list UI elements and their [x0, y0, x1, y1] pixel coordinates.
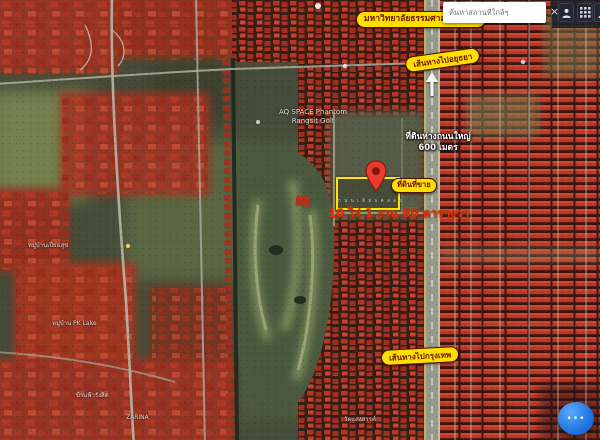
- apps-grid-button[interactable]: [577, 3, 593, 22]
- land-area-text: 10 ไร่ 1 งาน 80 ตารางวา: [328, 205, 452, 223]
- village-label: บ้านฟ้ารังสิต: [76, 390, 109, 400]
- person-icon: [561, 7, 572, 19]
- profile-button[interactable]: [558, 3, 574, 22]
- village-label: หมู่บ้านเปี่ยมสุข: [28, 240, 68, 250]
- chat-button[interactable]: •••: [558, 402, 594, 435]
- distance-line1: ที่ดินห่างถนนใหญ่: [404, 132, 472, 143]
- account-button[interactable]: [594, 3, 600, 22]
- satellite-map[interactable]: [0, 0, 600, 440]
- golf-resort-label-line1: AQ SPACE Phantom: [258, 108, 368, 117]
- village-label: ZARINA: [126, 414, 149, 421]
- map-app-window: มหาวิทยาลัยธรรมศาสตร์ รังสิต เส้นทางไปอย…: [0, 0, 600, 440]
- grid-icon: [580, 7, 591, 18]
- village-label: หมู่บ้าน PK Lake: [52, 318, 97, 328]
- temple-label: วัดแสงสรรค์: [344, 414, 376, 424]
- golf-resort-label: AQ SPACE Phantom Rangsit Golf: [258, 108, 368, 126]
- land-for-sale-label: ที่ดินที่ขาย: [391, 178, 437, 193]
- golf-resort-label-line2: Rangsit Golf: [258, 117, 368, 126]
- plot-caption: ถ น น เ ลี ย บ ค ล อ ง: [338, 197, 398, 204]
- map-pin[interactable]: [364, 158, 388, 194]
- search-bar: [443, 2, 546, 23]
- search-input[interactable]: [443, 2, 546, 23]
- road-direction-arrow-icon: [424, 72, 440, 98]
- distance-line2: 600 เมตร: [404, 143, 472, 154]
- distance-note: ที่ดินห่างถนนใหญ่ 600 เมตร: [404, 132, 472, 154]
- person-icon: [597, 7, 600, 19]
